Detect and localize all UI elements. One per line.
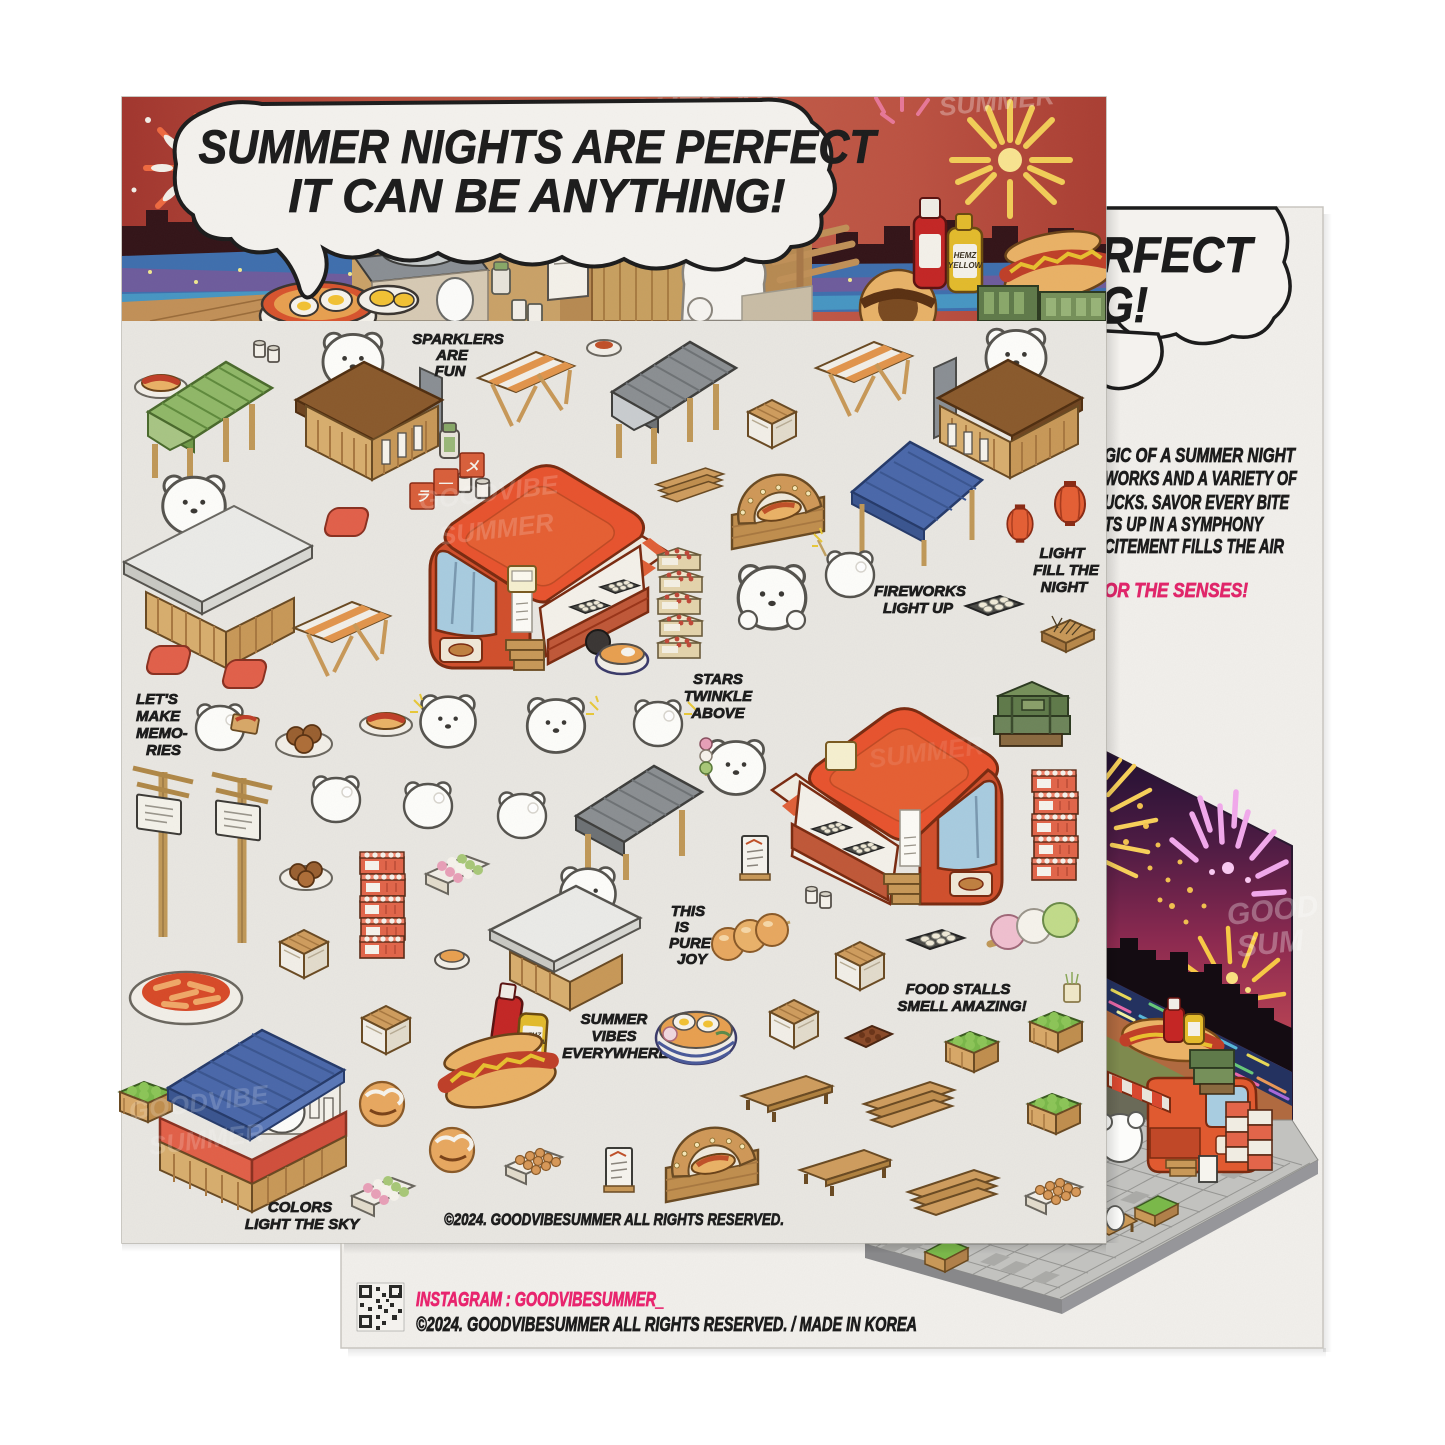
svg-text:©2024. GOODVIBESUMMER ALL RIGH: ©2024. GOODVIBESUMMER ALL RIGHTS RESERVE… — [444, 1210, 784, 1229]
svg-text:FIREWORKS: FIREWORKS — [874, 583, 966, 600]
svg-text:WORKS AND A VARIETY OF: WORKS AND A VARIETY OF — [1104, 468, 1298, 490]
svg-text:LIGHT THE SKY: LIGHT THE SKY — [245, 1216, 361, 1233]
svg-text:STARS: STARS — [693, 671, 743, 688]
svg-text:THIS: THIS — [671, 903, 705, 920]
svg-text:SPARKLERS: SPARKLERS — [412, 331, 503, 348]
svg-text:YELLOW: YELLOW — [948, 261, 984, 270]
svg-text:TWINKLE: TWINKLE — [684, 688, 753, 705]
svg-text:CITEMENT FILLS THE AIR: CITEMENT FILLS THE AIR — [1104, 536, 1284, 558]
svg-text:LIGHT: LIGHT — [1040, 545, 1087, 562]
svg-text:ABOVE: ABOVE — [690, 705, 745, 722]
svg-text:SUM: SUM — [1235, 924, 1306, 964]
svg-text:COLORS: COLORS — [268, 1199, 332, 1216]
svg-text:PURE: PURE — [669, 935, 712, 952]
svg-text:RFECT: RFECT — [1100, 227, 1256, 283]
svg-text:EVERYWHERE!: EVERYWHERE! — [562, 1045, 673, 1062]
svg-text:JOY: JOY — [677, 951, 709, 968]
svg-text:ARE: ARE — [435, 347, 469, 364]
svg-text:SMELL AMAZING!: SMELL AMAZING! — [897, 998, 1026, 1015]
svg-text:LET'S: LET'S — [136, 691, 178, 708]
svg-text:FUN: FUN — [435, 363, 467, 380]
svg-text:UCKS. SAVOR EVERY BITE: UCKS. SAVOR EVERY BITE — [1104, 492, 1289, 514]
svg-text:LIGHT UP: LIGHT UP — [883, 600, 954, 617]
svg-text:OR THE SENSES!: OR THE SENSES! — [1104, 580, 1248, 602]
svg-text:SUMMER: SUMMER — [581, 1011, 648, 1028]
svg-text:VIBES: VIBES — [591, 1028, 636, 1045]
svg-text:NIGHT: NIGHT — [1041, 579, 1090, 596]
svg-text:MAKE: MAKE — [136, 708, 181, 725]
svg-text:IS: IS — [675, 919, 689, 936]
svg-text:GIC OF A SUMMER NIGHT: GIC OF A SUMMER NIGHT — [1104, 445, 1296, 467]
svg-text:TS UP IN A SYMPHONY: TS UP IN A SYMPHONY — [1104, 514, 1264, 536]
svg-text:©2024. GOODVIBESUMMER ALL RIGH: ©2024. GOODVIBESUMMER ALL RIGHTS RESERVE… — [416, 1314, 917, 1336]
svg-text:MEMO-: MEMO- — [136, 725, 188, 742]
svg-text:INSTAGRAM : GOODVIBESUMMER_: INSTAGRAM : GOODVIBESUMMER_ — [416, 1289, 664, 1311]
svg-text:IT CAN BE ANYTHING!: IT CAN BE ANYTHING! — [289, 169, 786, 222]
svg-text:RIES: RIES — [146, 742, 181, 759]
svg-text:メ: メ — [465, 458, 480, 474]
svg-text:FOOD STALLS: FOOD STALLS — [906, 981, 1011, 998]
svg-text:HEMZ: HEMZ — [954, 251, 978, 260]
svg-text:FILL THE: FILL THE — [1033, 562, 1100, 579]
svg-text:SUMMER NIGHTS ARE PERFECT: SUMMER NIGHTS ARE PERFECT — [199, 120, 880, 173]
